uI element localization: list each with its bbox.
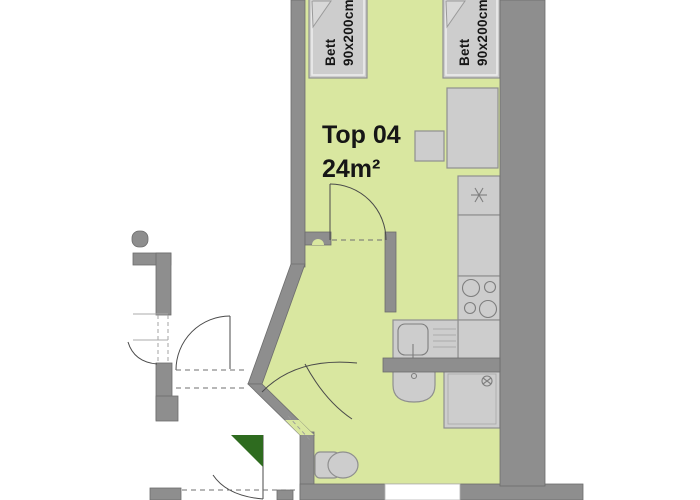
floorplan: Bett 90x200cm Bett 90x200cm	[0, 0, 700, 500]
washbasin	[393, 370, 435, 402]
shower	[444, 370, 500, 428]
toilet-bowl	[328, 452, 358, 478]
kitchen-counter	[458, 215, 500, 276]
wall-right	[500, 0, 545, 486]
wall-notch	[277, 490, 293, 500]
unit-label: Top 04	[322, 121, 401, 149]
hall-column	[132, 231, 148, 247]
toilet	[315, 452, 358, 478]
floorplan-svg: Bett 90x200cm Bett 90x200cm	[0, 0, 700, 500]
bed-2: Bett 90x200cm	[443, 0, 500, 78]
fridge	[458, 176, 500, 215]
hall-door1-arc	[128, 342, 157, 364]
wall-interior-vertical	[385, 232, 396, 312]
bed-2-size: 90x200cm	[475, 0, 490, 66]
bed-2-label: Bett	[457, 38, 472, 66]
bed-1: Bett 90x200cm	[309, 0, 367, 78]
kitchen-sink-unit	[393, 320, 500, 363]
counter-corner	[458, 320, 500, 359]
bed-1-label: Bett	[323, 38, 338, 66]
wardrobe	[447, 88, 498, 168]
entrance-marker	[231, 435, 263, 467]
hall-wall-foot	[156, 396, 178, 421]
washbasin-bowl	[393, 370, 435, 402]
table	[415, 131, 444, 161]
wall-kitchen-bath	[383, 358, 500, 372]
bottom-wall-opening	[385, 484, 460, 500]
stove	[458, 276, 500, 320]
hall-door2-arc	[176, 316, 230, 370]
bed-1-size: 90x200cm	[341, 0, 356, 66]
hall-wall-vertical-upper	[156, 253, 171, 315]
wall-left-upper	[291, 0, 305, 267]
entrance-door-arc	[213, 475, 263, 499]
unit-area: 24m²	[322, 155, 380, 183]
hall-wall-bottom-stub	[150, 488, 181, 500]
